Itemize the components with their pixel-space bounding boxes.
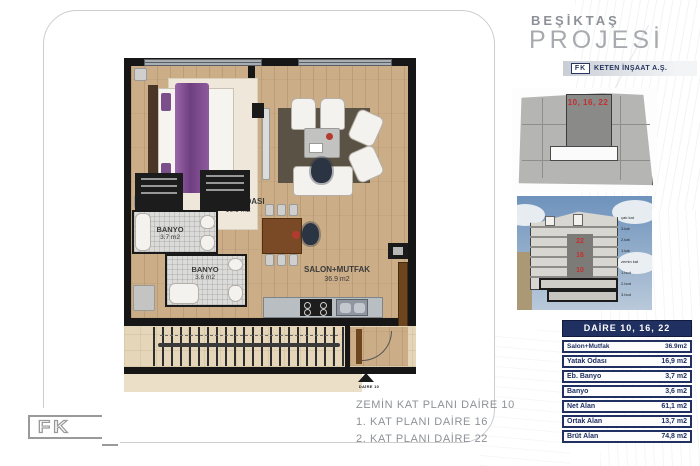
- brand-fk-logo: FK: [571, 63, 590, 74]
- table-row: Banyo 3,6 m2: [562, 385, 692, 398]
- salon-window: [298, 59, 392, 66]
- section-highlighted-unit: 22 16 10: [567, 234, 593, 278]
- fruit-bowl: [292, 231, 300, 239]
- dining-chair: [265, 254, 274, 266]
- section-floor-label: zemin kat: [621, 260, 651, 264]
- section-floor-label: 3.bod: [621, 293, 651, 297]
- row-value: 16,9 m2: [661, 358, 687, 365]
- bathroom2-toilet: [228, 285, 243, 302]
- entry-marker-label: DAİRE 10: [356, 384, 382, 389]
- kitchen-sink: [336, 299, 368, 316]
- brand-bar: FK KETEN İNŞAAT A.Ş.: [563, 61, 697, 76]
- bedroom-window: [144, 59, 262, 66]
- wall-apartment-bottom: [124, 318, 416, 326]
- row-value: 74,8 m2: [661, 433, 687, 440]
- section-basement: [547, 290, 618, 302]
- magazine: [309, 143, 323, 153]
- bathroom2-area: 3.6 m2: [175, 274, 235, 281]
- table-row: Brüt Alan 74,8 m2: [562, 430, 692, 443]
- section-floor-22: 22: [576, 238, 584, 245]
- caption-line: 1. KAT PLANI DAİRE 16: [356, 414, 515, 431]
- nightstand: [134, 68, 147, 81]
- shower: [169, 283, 199, 304]
- section-floor-label: 2.bod: [621, 282, 651, 286]
- row-label: Brüt Alan: [567, 433, 598, 440]
- section-floor-label: 1.kat: [621, 249, 651, 253]
- table-row: Ortak Alan 13,7 m2: [562, 415, 692, 428]
- section-floor-label: çatı kat: [621, 216, 651, 220]
- dining-chair: [277, 254, 286, 266]
- radiator: [262, 108, 270, 180]
- row-value: 3,7 m2: [665, 373, 687, 380]
- dining-chair: [265, 204, 274, 216]
- fk-logo-text: FK: [38, 417, 71, 438]
- row-value: 3,6 m2: [665, 388, 687, 395]
- washing-machine: [133, 285, 155, 311]
- row-label: Banyo: [567, 388, 588, 395]
- row-label: Net Alan: [567, 403, 595, 410]
- stair-direction-line: [160, 335, 338, 336]
- bed-pillow: [161, 93, 171, 111]
- footer-fk-logo: FK: [28, 408, 120, 446]
- bathroom2-label: BANYO: [175, 265, 235, 274]
- section-floor-16: 16: [576, 252, 584, 259]
- wall-left: [124, 58, 131, 326]
- key-plan-image: 10, 16, 22: [512, 88, 657, 192]
- stair-handrail: [158, 343, 340, 347]
- bathroom1-area: 3.7 m2: [140, 234, 200, 241]
- table-row: Net Alan 61,1 m2: [562, 400, 692, 413]
- row-label: Yatak Odası: [567, 358, 607, 365]
- floor-plan: YATAK ODASI 16.9 m2 BANYO 3.7 m2 BANYO 3…: [120, 55, 420, 395]
- building-section-image: 22 16 10 çatı kat 3.kat 2.kat 1.kat zemi…: [517, 196, 652, 310]
- dining-chair: [277, 204, 286, 216]
- table-header: DAİRE 10, 16, 22: [562, 320, 692, 337]
- cooktop: [300, 299, 332, 316]
- table-row: Eb. Banyo 3,7 m2: [562, 370, 692, 383]
- wardrobe: [200, 170, 250, 211]
- caption-line: ZEMİN KAT PLANI DAİRE 10: [356, 397, 515, 414]
- wall-niche: [388, 243, 408, 259]
- person-sitting: [311, 158, 332, 183]
- flower-decor: [326, 133, 333, 140]
- bathroom1-sink: [200, 215, 215, 229]
- caption-line: 2. KAT PLANI DAİRE 22: [356, 431, 515, 448]
- section-basement: [539, 278, 618, 290]
- section-floor-label: 1.bod: [621, 271, 651, 275]
- key-plan-corridor: [550, 146, 618, 161]
- bathroom1-toilet: [200, 235, 215, 251]
- salon-area: 36.9 m2: [287, 276, 387, 283]
- bathroom1-label: BANYO: [140, 225, 200, 234]
- fk-logo-bracket: FK: [28, 415, 102, 439]
- row-label: Ortak Alan: [567, 418, 602, 425]
- exterior-apron: [124, 374, 362, 392]
- section-floor-label: 2.kat: [621, 238, 651, 242]
- project-title: PROJESİ: [529, 26, 664, 55]
- table-row: Salon+Mutfak 36.9m2: [562, 340, 692, 353]
- salon-label: SALON+MUTFAK: [287, 265, 387, 274]
- row-value: 36.9m2: [665, 343, 687, 350]
- person-at-table: [302, 223, 319, 245]
- fk-logo-tail: [102, 444, 118, 446]
- dining-chair: [289, 204, 298, 216]
- row-value: 13,7 m2: [661, 418, 687, 425]
- row-label: Salon+Mutfak: [567, 343, 609, 350]
- table-row: Yatak Odası 16,9 m2: [562, 355, 692, 368]
- roof-box: [545, 216, 555, 226]
- armchair: [320, 98, 345, 130]
- row-label: Eb. Banyo: [567, 373, 601, 380]
- roof-box: [573, 214, 583, 226]
- entry-marker-triangle: [358, 373, 374, 382]
- armchair: [291, 98, 316, 130]
- unit-area-table: DAİRE 10, 16, 22 Salon+Mutfak 36.9m2 Yat…: [562, 320, 692, 443]
- floor-plan-captions: ZEMİN KAT PLANI DAİRE 10 1. KAT PLANI DA…: [356, 397, 515, 448]
- section-ground: [517, 252, 532, 310]
- wall-unit: [252, 103, 264, 118]
- wardrobe: [135, 173, 183, 211]
- row-value: 61,1 m2: [661, 403, 687, 410]
- section-floor-label: 3.kat: [621, 227, 651, 231]
- key-plan-unit-label: 10, 16, 22: [552, 98, 624, 107]
- brand-company-name: KETEN İNŞAAT A.Ş.: [594, 65, 667, 72]
- section-floor-10: 10: [576, 267, 584, 274]
